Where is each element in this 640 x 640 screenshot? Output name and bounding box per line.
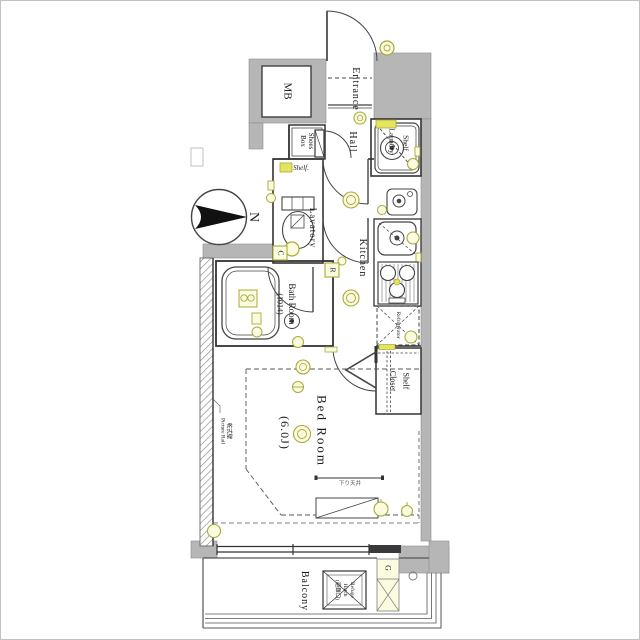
plan-graphics [1, 1, 639, 639]
label-shoes-box-1: Shoes [307, 133, 315, 150]
label-wall-note: 乾式壁 Picture Rail [219, 418, 232, 444]
label-hall: Hall [346, 131, 358, 152]
label-mb: MB [281, 82, 294, 99]
floor-plan: MB Entrance Hall Shoes Box Shelf Laundry… [0, 0, 640, 640]
label-bath-size: (1014) [275, 293, 284, 314]
label-kitchen: Kitchen [356, 239, 368, 278]
entrance-door-arc [327, 11, 377, 61]
label-shoes-box-2: Box [299, 135, 307, 147]
wall-note-leader [213, 399, 220, 413]
label-gas-meter: G [383, 565, 392, 571]
label-laundry: Laundry [387, 128, 396, 153]
label-north: N [245, 212, 261, 222]
label-ceiling-note: 下り天井 [339, 481, 361, 487]
closet-interior [378, 345, 419, 413]
north-compass [192, 190, 248, 245]
label-refuge-2: Hatch [342, 583, 348, 596]
label-closet-shelf: Shelf [401, 373, 410, 390]
washing-machine [375, 120, 420, 173]
label-lavatory-shelf: Shelf. [293, 164, 309, 172]
label-laundry-shelf: Shelf [401, 135, 410, 151]
label-closet: Closet [388, 371, 397, 391]
kitchen-sink [378, 222, 421, 262]
label-bedroom: Bed Room [314, 395, 329, 467]
label-refuge-1: Refuge [349, 582, 355, 598]
stove [378, 262, 418, 304]
balcony-window [217, 544, 401, 555]
hatched-wall [200, 258, 213, 546]
label-refuge-3: (避難口) [334, 580, 340, 600]
label-lavatory: Lavatory [308, 208, 318, 248]
label-refrigerator: Refrigerator [395, 312, 401, 339]
label-bath-room: Bath Room [287, 283, 297, 324]
dimension-line [315, 476, 385, 481]
label-control-box: C [276, 250, 285, 255]
label-bedroom-size: (6.0J) [277, 416, 291, 450]
label-balcony: Balcony [298, 571, 310, 611]
label-entrance: Entrance [349, 67, 361, 111]
vanity-sink [378, 189, 418, 215]
label-remote-box: R [328, 267, 337, 272]
interior-walls [213, 119, 421, 546]
bed [316, 498, 378, 518]
